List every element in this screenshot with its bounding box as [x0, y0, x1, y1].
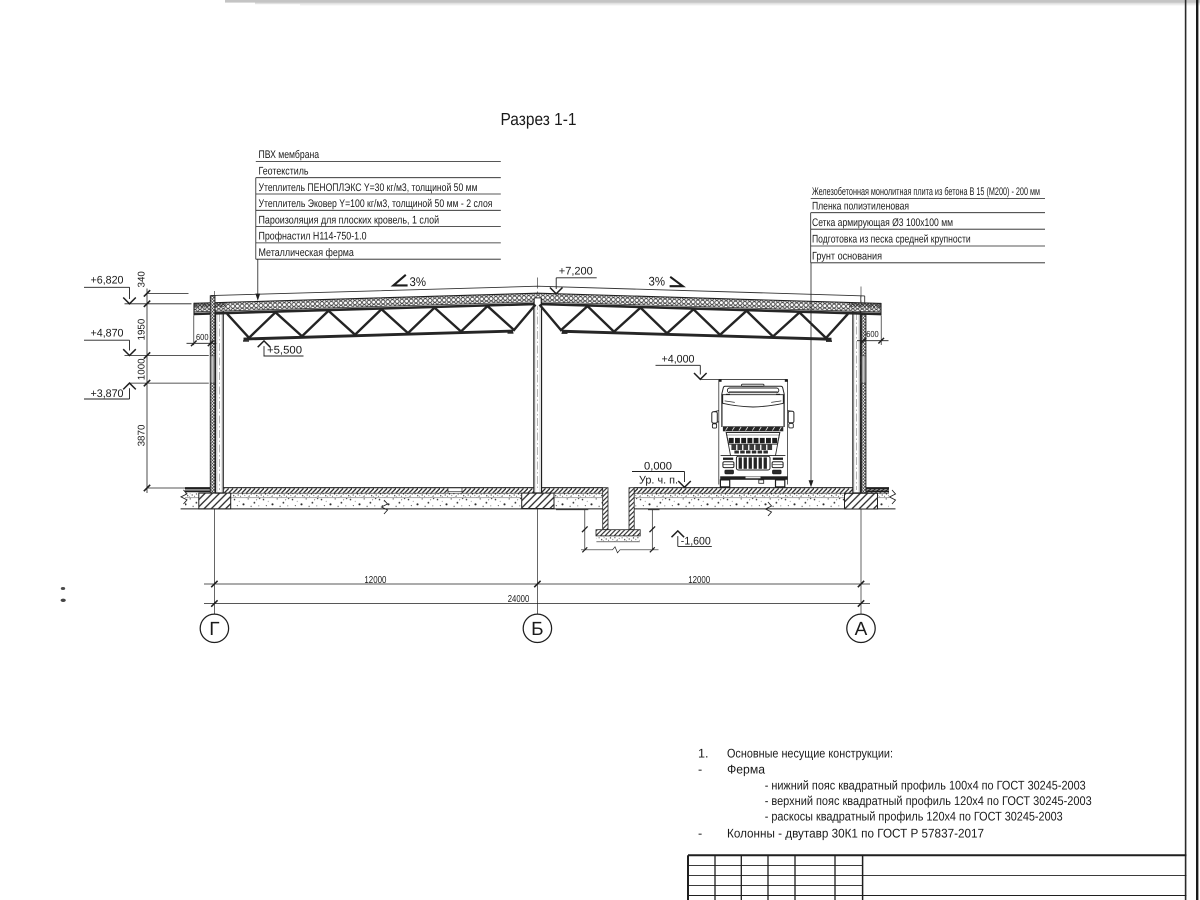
svg-text:+4,870: +4,870 [91, 327, 124, 339]
svg-text:Колонны - двутавр 30К1 по ГОСТ: Колонны - двутавр 30К1 по ГОСТ Р 57837-2… [727, 826, 984, 840]
svg-text:12000: 12000 [688, 575, 710, 586]
svg-text:- нижний пояс квадратный профи: - нижний пояс квадратный профиль 100х4 п… [765, 778, 1086, 792]
svg-text:-1,600: -1,600 [681, 535, 711, 547]
svg-text:1.: 1. [698, 747, 709, 761]
svg-text:340: 340 [137, 271, 148, 288]
svg-text:Б: Б [531, 619, 543, 640]
svg-text:+4,000: +4,000 [662, 353, 695, 365]
svg-text:Разрез 1-1: Разрез 1-1 [501, 109, 577, 129]
svg-text:3%: 3% [410, 275, 427, 289]
svg-text:1950: 1950 [137, 318, 148, 340]
svg-text:Ур. ч. п.: Ур. ч. п. [639, 475, 678, 487]
svg-text:Утеплитель Эковер Y=100 кг/м3,: Утеплитель Эковер Y=100 кг/м3, толщиной … [259, 198, 493, 210]
svg-text:-: - [698, 826, 702, 840]
svg-text:1000: 1000 [137, 358, 148, 380]
svg-text:+6,820: +6,820 [91, 275, 124, 287]
svg-text:Металлическая ферма: Металлическая ферма [259, 247, 355, 259]
svg-text:Грунт основания: Грунт основания [812, 250, 882, 262]
svg-text:Железобетонная монолитная плит: Железобетонная монолитная плита из бетон… [812, 186, 1040, 198]
svg-text:ПВХ мембрана: ПВХ мембрана [259, 149, 320, 161]
svg-text:600: 600 [196, 332, 209, 342]
svg-text:Г: Г [209, 619, 219, 640]
svg-text:Профнастил Н114-750-1.0: Профнастил Н114-750-1.0 [259, 231, 367, 243]
svg-text:Утеплитель ПЕНОПЛЭКС Y=30 кг/м: Утеплитель ПЕНОПЛЭКС Y=30 кг/м3, толщино… [259, 182, 478, 194]
svg-text:0,000: 0,000 [644, 460, 672, 472]
svg-text:Пароизоляция для плоских крове: Пароизоляция для плоских кровель, 1 слой [259, 214, 440, 226]
svg-text:+7,200: +7,200 [559, 265, 593, 277]
svg-text:3%: 3% [649, 274, 666, 288]
svg-text:А: А [855, 619, 868, 640]
svg-text:- раскосы квадратный профиль 1: - раскосы квадратный профиль 120х4 по ГО… [765, 810, 1063, 824]
svg-text:-: - [698, 762, 702, 776]
svg-text:12000: 12000 [364, 575, 386, 586]
svg-text:- верхний пояс квадратный проф: - верхний пояс квадратный профиль 120х4 … [765, 794, 1092, 808]
svg-text:Сетка армирующая Ø3 100х100 мм: Сетка армирующая Ø3 100х100 мм [812, 217, 953, 229]
svg-text:Пленка полиэтиленовая: Пленка полиэтиленовая [812, 200, 909, 212]
svg-text:600: 600 [866, 329, 879, 339]
svg-text:3870: 3870 [137, 424, 148, 446]
svg-text:Ферма: Ферма [727, 762, 765, 776]
svg-text:+5,500: +5,500 [267, 345, 302, 357]
svg-text:Геотекстиль: Геотекстиль [259, 166, 309, 178]
svg-text:24000: 24000 [508, 594, 530, 605]
svg-text:+3,870: +3,870 [91, 388, 124, 400]
svg-text:Подготовка из песка средней кр: Подготовка из песка средней крупности [812, 234, 971, 246]
svg-text:Основные несущие конструкции:: Основные несущие конструкции: [727, 747, 893, 761]
